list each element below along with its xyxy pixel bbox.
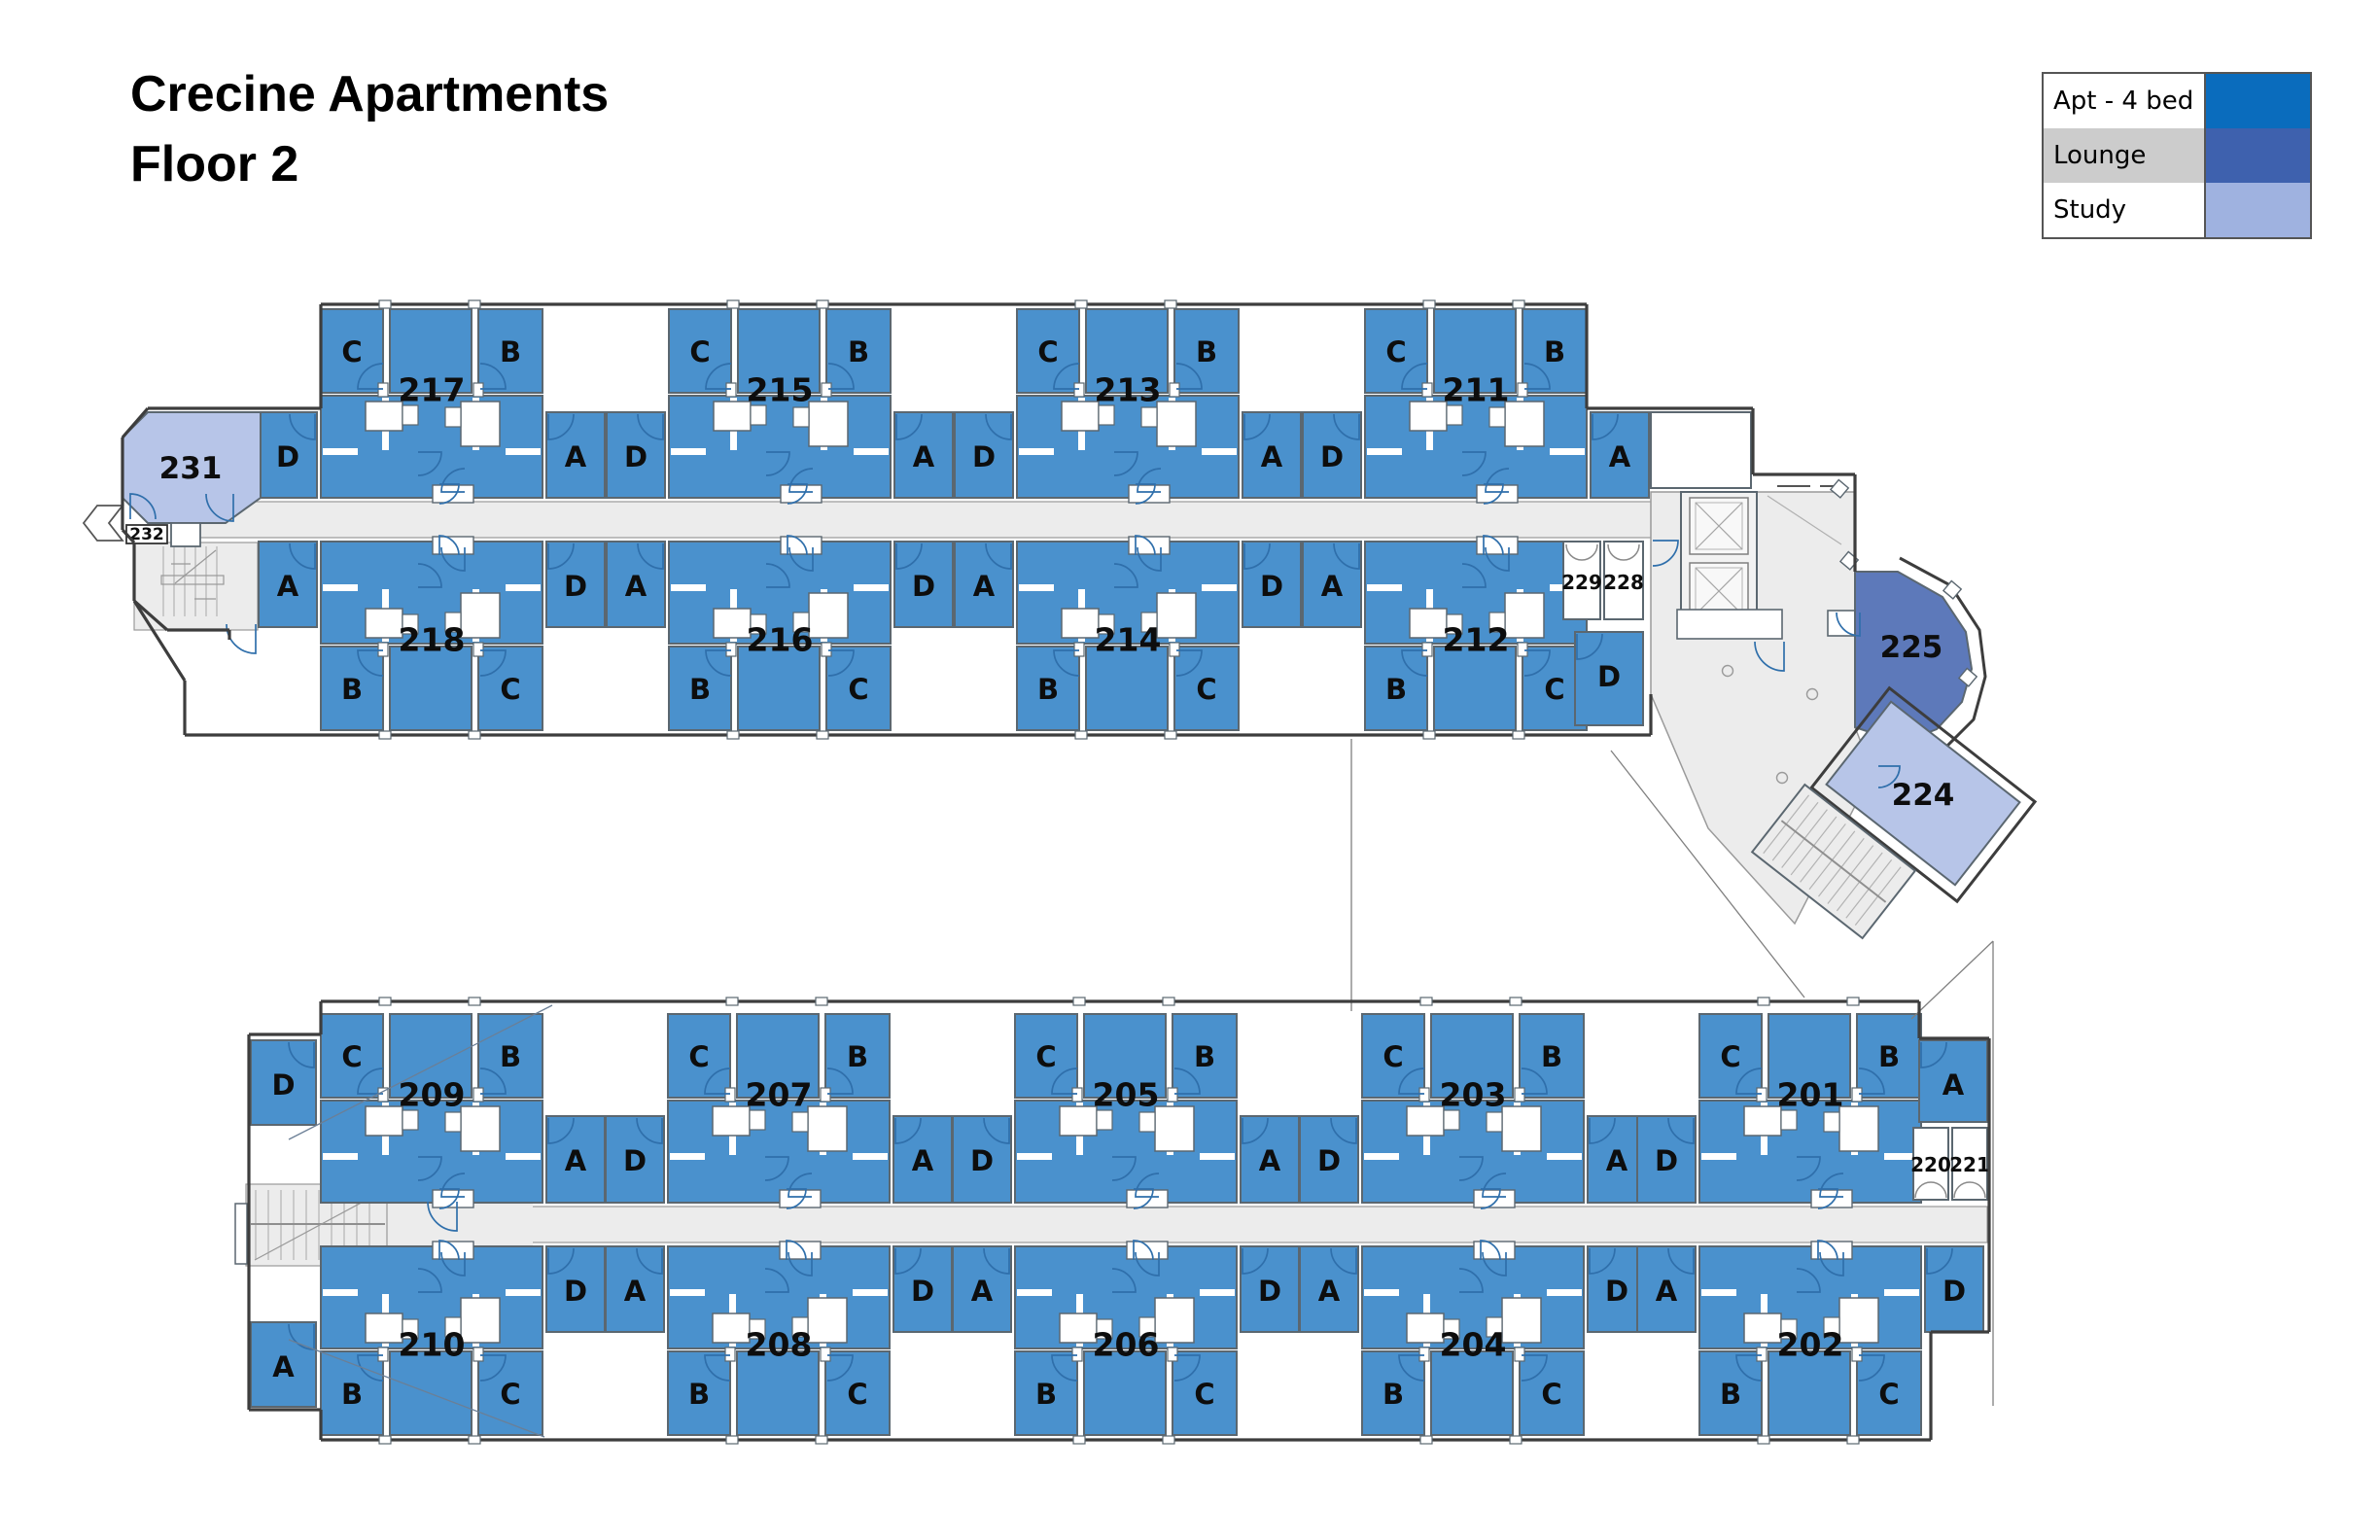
bathroom-pod — [1157, 593, 1196, 638]
wall-tick — [469, 1436, 480, 1444]
bathroom-pod — [809, 402, 848, 446]
bathroom-pod — [366, 402, 402, 431]
apartment-214-common — [1086, 647, 1168, 730]
door-jamb — [1168, 1347, 1177, 1361]
wall-tick — [469, 731, 480, 739]
room-217-B-label: B — [500, 335, 521, 368]
plan-element — [1701, 1153, 1736, 1160]
corridor-door-notch — [1477, 485, 1518, 503]
room-213-C-label: C — [1037, 335, 1058, 368]
apartment-218-common — [390, 647, 472, 730]
wall-tick — [1420, 997, 1432, 1005]
wall-tick — [1073, 1436, 1085, 1444]
door-jamb — [726, 643, 736, 656]
bathroom-pod — [366, 1106, 402, 1136]
door-jamb — [378, 383, 388, 397]
bathroom-pod — [461, 1106, 500, 1151]
room-206-D-label: D — [1258, 1275, 1281, 1308]
room-208-A-label: A — [624, 1275, 647, 1308]
plan-element — [853, 1153, 888, 1160]
room-203-A-label: A — [1606, 1144, 1628, 1177]
plan-element — [1701, 1289, 1736, 1296]
apartment-210-label: 210 — [399, 1326, 466, 1364]
plan-element — [1202, 584, 1237, 591]
bathroom-pod — [1407, 1106, 1444, 1136]
bathroom-pod — [461, 402, 500, 446]
bathroom-pod — [1060, 1106, 1097, 1136]
bathroom-pod — [1060, 1313, 1097, 1343]
apartment-212-label: 212 — [1443, 621, 1510, 659]
apartment-203-hall — [1362, 1101, 1584, 1203]
room-215-D-label: D — [624, 440, 647, 473]
wall-tick — [1513, 731, 1524, 739]
plan-element — [854, 448, 889, 455]
bathroom-pod — [714, 609, 751, 638]
room-220-label: 220 — [1910, 1153, 1951, 1176]
wall-tick — [1165, 731, 1176, 739]
plan-element — [323, 1153, 358, 1160]
room-213-B-label: B — [1196, 335, 1217, 368]
wall-tick — [817, 731, 828, 739]
door-jamb — [822, 383, 831, 397]
wall-tick — [816, 997, 827, 1005]
apartment-217-hall — [321, 396, 542, 498]
bathroom-pod — [1505, 593, 1544, 638]
room-218-B-label: B — [341, 673, 363, 706]
bathroom-pod — [808, 1298, 847, 1343]
exit-arrow — [84, 506, 122, 541]
plan-element — [1884, 1289, 1919, 1296]
room-202-A-label: A — [1656, 1275, 1678, 1308]
plan-element — [1017, 1153, 1052, 1160]
door-jamb — [1074, 383, 1084, 397]
bathroom-pod — [461, 593, 500, 638]
door-jamb — [473, 643, 483, 656]
wall-tick — [1423, 731, 1435, 739]
sink — [792, 1112, 808, 1132]
room-217-A-label: A — [565, 440, 587, 473]
room-209-C-label: C — [341, 1040, 362, 1073]
apartment-201-label: 201 — [1777, 1076, 1844, 1114]
door-jamb — [1170, 383, 1179, 397]
room-203-C-label: C — [1382, 1040, 1403, 1073]
room-204-C-label: C — [1541, 1378, 1561, 1411]
wall-tick — [727, 731, 739, 739]
room-216-A-label: A — [625, 570, 647, 603]
section-line — [1911, 941, 1993, 1019]
apartment-207-label: 207 — [746, 1076, 813, 1114]
plan-element — [1200, 1153, 1235, 1160]
room-208-D-label: D — [911, 1275, 934, 1308]
door-jamb — [1757, 1347, 1767, 1361]
room-228-label: 228 — [1603, 571, 1644, 594]
room-201-A-label: A — [1942, 1068, 1965, 1102]
plan-element — [506, 1289, 541, 1296]
wall-tick — [1420, 1436, 1432, 1444]
elevator-vestibule — [1677, 610, 1782, 639]
room-208-B-label: B — [688, 1378, 710, 1411]
room-205-D-label: D — [970, 1144, 994, 1177]
wall-tick — [1513, 300, 1524, 308]
apartment-217-label: 217 — [399, 371, 466, 409]
room-205-A-label: A — [1259, 1144, 1281, 1177]
corridor-door-notch — [781, 485, 822, 503]
door-jamb — [1757, 1088, 1767, 1102]
sink — [1824, 1112, 1839, 1132]
corridor-door-notch — [1129, 485, 1170, 503]
apartment-204-common — [1431, 1351, 1513, 1435]
wall-tick — [1758, 1436, 1769, 1444]
room-203-D-label: D — [1317, 1144, 1341, 1177]
bathroom-pod — [1839, 1298, 1878, 1343]
apartment-203-label: 203 — [1440, 1076, 1507, 1114]
room-212-C-label: C — [1544, 673, 1564, 706]
bathroom-pod — [1062, 609, 1099, 638]
wall-tick — [726, 1436, 738, 1444]
wall-tick — [1847, 1436, 1859, 1444]
bathroom-pod — [1744, 1106, 1781, 1136]
sink — [445, 1112, 461, 1132]
room-207-B-label: B — [847, 1040, 868, 1073]
corridor-door-notch — [780, 1190, 821, 1207]
room-215-C-label: C — [689, 335, 710, 368]
room-218-A-label: A — [277, 570, 299, 603]
wall-tick — [1075, 731, 1087, 739]
apartment-206-label: 206 — [1093, 1326, 1160, 1364]
plan-element — [670, 1289, 705, 1296]
apartment-205-hall — [1015, 1101, 1237, 1203]
apartment-215-label: 215 — [747, 371, 814, 409]
door-jamb — [378, 643, 388, 656]
room-231-label: 231 — [159, 451, 223, 486]
room-205-B-label: B — [1194, 1040, 1215, 1073]
bathroom-pod — [461, 1298, 500, 1343]
room-211-A-label: A — [1609, 440, 1631, 473]
door-jamb — [1515, 1088, 1524, 1102]
bathroom-pod — [1502, 1298, 1541, 1343]
wall-tick — [727, 300, 739, 308]
wall-tick — [379, 731, 391, 739]
door-jamb — [725, 1347, 735, 1361]
room-210-B-label: B — [341, 1378, 363, 1411]
room-209-B-label: B — [500, 1040, 521, 1073]
room-204-B-label: B — [1382, 1378, 1404, 1411]
plan-element — [1547, 1153, 1582, 1160]
apartment-215-hall — [669, 396, 891, 498]
wall-tick — [1163, 997, 1174, 1005]
door-jamb — [1422, 643, 1432, 656]
sink — [1141, 407, 1157, 427]
wall-tick — [1758, 997, 1769, 1005]
page: Crecine Apartments Floor 2 Apt - 4 bed L… — [0, 0, 2380, 1540]
door-jamb — [1072, 1088, 1082, 1102]
plan-element — [854, 584, 889, 591]
room-217-D-label: D — [276, 440, 299, 473]
door-jamb — [473, 1347, 483, 1361]
room-224-label: 224 — [1892, 778, 1955, 813]
plan-element — [670, 1153, 705, 1160]
door-jamb — [473, 383, 483, 397]
plan-element — [853, 1289, 888, 1296]
apartment-209-label: 209 — [399, 1076, 466, 1114]
plan-element — [506, 1153, 541, 1160]
plan-element — [671, 448, 706, 455]
floor-plan: 217CBDA215CBDA213CBDA211CBDA218BCAD216BC… — [0, 0, 2380, 1540]
room-214-C-label: C — [1196, 673, 1216, 706]
stair-entry-lower — [235, 1204, 247, 1264]
plan-element — [323, 584, 358, 591]
apartment-218-label: 218 — [399, 621, 466, 659]
corridor-upper — [200, 502, 1653, 538]
room-216-C-label: C — [848, 673, 868, 706]
apartment-213-label: 213 — [1095, 371, 1162, 409]
door-jamb — [1422, 383, 1432, 397]
room-213-D-label: D — [972, 440, 996, 473]
bathroom-pod — [1744, 1313, 1781, 1343]
wall-tick — [1847, 997, 1859, 1005]
plan-element — [1547, 1289, 1582, 1296]
room-215-B-label: B — [848, 335, 869, 368]
room-214-A-label: A — [973, 570, 996, 603]
room-211-D-label: D — [1320, 440, 1344, 473]
apartment-211-hall — [1365, 396, 1587, 498]
door-jamb — [726, 383, 736, 397]
wall-tick — [1163, 1436, 1174, 1444]
bathroom-pod — [1410, 402, 1447, 431]
door-jamb — [821, 1088, 830, 1102]
apartment-207-hall — [668, 1101, 890, 1203]
apartment-208-label: 208 — [746, 1326, 813, 1364]
plan-element — [506, 448, 541, 455]
room-216-D-label: D — [912, 570, 935, 603]
door-jamb — [1518, 383, 1527, 397]
room-218-C-label: C — [500, 673, 520, 706]
apartment-204-label: 204 — [1440, 1326, 1507, 1364]
apartment-208-common — [737, 1351, 819, 1435]
wall-tick — [1510, 1436, 1522, 1444]
wall-tick — [469, 997, 480, 1005]
sink — [1489, 407, 1505, 427]
plan-element — [1200, 1289, 1235, 1296]
door-jamb — [1072, 1347, 1082, 1361]
wall-tick — [1073, 997, 1085, 1005]
room-211-C-label: C — [1385, 335, 1406, 368]
sink — [1139, 1112, 1155, 1132]
door-jamb — [1852, 1088, 1862, 1102]
door-jamb — [1419, 1347, 1429, 1361]
sink — [793, 407, 809, 427]
room-211-B-label: B — [1544, 335, 1565, 368]
room-212-D-label: D — [1597, 660, 1621, 693]
plan-element — [1364, 1289, 1399, 1296]
apartment-202-common — [1768, 1351, 1850, 1435]
door-jamb — [821, 1347, 830, 1361]
apartment-214-label: 214 — [1095, 621, 1162, 659]
bathroom-pod — [1839, 1106, 1878, 1151]
plan-element — [1017, 1289, 1052, 1296]
plan-element — [323, 1289, 358, 1296]
wall-tick — [817, 300, 828, 308]
room-215-A-label: A — [913, 440, 935, 473]
door-jamb — [1170, 643, 1179, 656]
room-207-A-label: A — [912, 1144, 934, 1177]
apartment-213-hall — [1017, 396, 1239, 498]
room-202-B-label: B — [1720, 1378, 1741, 1411]
room-210-A-label: A — [272, 1350, 295, 1383]
door-jamb — [378, 1347, 388, 1361]
room-202-C-label: C — [1878, 1378, 1899, 1411]
corridor-door-notch — [433, 1190, 473, 1207]
door-jamb — [1168, 1088, 1177, 1102]
corridor-door-notch — [1811, 1190, 1852, 1207]
apartment-205-label: 205 — [1093, 1076, 1160, 1114]
room-209-D-label: D — [271, 1068, 295, 1102]
plan-element — [671, 584, 706, 591]
room-214-B-label: B — [1037, 673, 1059, 706]
plan-element — [506, 584, 541, 591]
wall-tick — [726, 997, 738, 1005]
corridor-door-notch — [1474, 1190, 1515, 1207]
room-207-D-label: D — [623, 1144, 647, 1177]
bathroom-pod — [714, 402, 751, 431]
sink — [1487, 1112, 1502, 1132]
door-jamb — [725, 1088, 735, 1102]
door-jamb — [1074, 643, 1084, 656]
apartment-206-common — [1084, 1351, 1166, 1435]
apartment-201-hall — [1699, 1101, 1921, 1203]
wall-tick — [1423, 300, 1435, 308]
room-216-B-label: B — [689, 673, 711, 706]
room-229-label: 229 — [1561, 571, 1602, 594]
bathroom-pod — [713, 1313, 750, 1343]
wall-tick — [816, 1436, 827, 1444]
plan-element — [1367, 584, 1402, 591]
bathroom-pod — [808, 1106, 847, 1151]
plan-element — [1367, 448, 1402, 455]
room-212-A-label: A — [1321, 570, 1344, 603]
door-jamb — [822, 643, 831, 656]
room-202-D-label: D — [1942, 1275, 1966, 1308]
door-jamb — [1518, 643, 1527, 656]
door-jamb — [1419, 1088, 1429, 1102]
room-204-D-label: D — [1605, 1275, 1628, 1308]
wall-tick — [1075, 300, 1087, 308]
plan-element — [1364, 1153, 1399, 1160]
room-213-A-label: A — [1261, 440, 1283, 473]
bathroom-pod — [1410, 609, 1447, 638]
bathroom-pod — [1062, 402, 1099, 431]
plan-element — [1019, 448, 1054, 455]
room-221-label: 221 — [1949, 1153, 1990, 1176]
apartment-216-common — [738, 647, 820, 730]
wall-tick — [379, 1436, 391, 1444]
room-206-B-label: B — [1035, 1378, 1057, 1411]
apartment-212-common — [1434, 647, 1516, 730]
room-206-A-label: A — [971, 1275, 994, 1308]
room-214-D-label: D — [1260, 570, 1283, 603]
room-205-C-label: C — [1035, 1040, 1056, 1073]
wall-tick — [1165, 300, 1176, 308]
room-212-B-label: B — [1385, 673, 1407, 706]
room-207-C-label: C — [688, 1040, 709, 1073]
wall-tick — [1510, 997, 1522, 1005]
bathroom-pod — [366, 1313, 402, 1343]
plan-element — [1202, 448, 1237, 455]
bathroom-pod — [809, 593, 848, 638]
apartment-211-label: 211 — [1443, 371, 1510, 409]
room-225-label: 225 — [1880, 630, 1943, 665]
room-204-A-label: A — [1318, 1275, 1341, 1308]
plan-element — [1550, 448, 1585, 455]
bathroom-pod — [366, 609, 402, 638]
room-217-C-label: C — [341, 335, 362, 368]
door-jamb — [1852, 1347, 1862, 1361]
door-jamb — [1515, 1347, 1524, 1361]
room-203-B-label: B — [1541, 1040, 1562, 1073]
bathroom-pod — [1155, 1298, 1194, 1343]
room-210-C-label: C — [500, 1378, 520, 1411]
apartment-209-hall — [321, 1101, 542, 1203]
bathroom-pod — [1407, 1313, 1444, 1343]
wall-tick — [379, 300, 391, 308]
wall-tick — [469, 300, 480, 308]
bathroom-pod — [1502, 1106, 1541, 1151]
plan-element — [323, 448, 358, 455]
service-box — [171, 523, 200, 546]
sink — [445, 407, 461, 427]
room-201-B-label: B — [1878, 1040, 1900, 1073]
room-201-D-label: D — [1655, 1144, 1678, 1177]
room-208-C-label: C — [847, 1378, 867, 1411]
bathroom-pod — [713, 1106, 750, 1136]
door-jamb — [473, 1088, 483, 1102]
room-206-C-label: C — [1194, 1378, 1214, 1411]
plan-element — [1019, 584, 1054, 591]
room-218-D-label: D — [564, 570, 587, 603]
wall-tick — [379, 997, 391, 1005]
corridor-door-notch — [1127, 1190, 1168, 1207]
room-201-C-label: C — [1720, 1040, 1740, 1073]
bathroom-pod — [1505, 402, 1544, 446]
corridor-door-notch — [433, 485, 473, 503]
bathroom-pod — [1157, 402, 1196, 446]
store-room-upper-right — [1651, 412, 1751, 488]
apartment-216-label: 216 — [747, 621, 814, 659]
apartment-202-label: 202 — [1777, 1326, 1844, 1364]
bathroom-pod — [1155, 1106, 1194, 1151]
room-209-A-label: A — [565, 1144, 587, 1177]
room-210-D-label: D — [564, 1275, 587, 1308]
